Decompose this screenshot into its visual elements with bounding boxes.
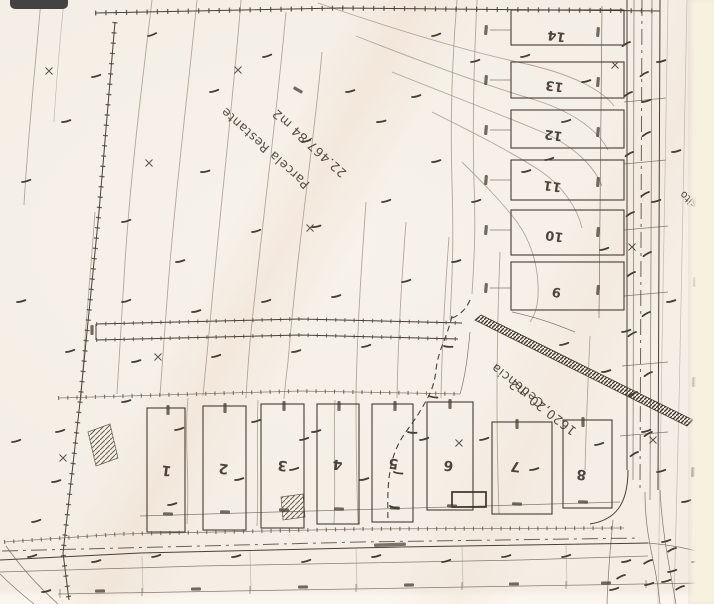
lot-outline xyxy=(511,110,624,148)
hatched-building xyxy=(88,424,305,520)
lot-number: 9 xyxy=(551,283,562,299)
lot-number: 12 xyxy=(544,126,564,143)
lot-number: 10 xyxy=(545,227,565,244)
lot-number: 2 xyxy=(218,459,230,476)
building-outline xyxy=(452,492,486,507)
lot-number: 8 xyxy=(576,465,588,482)
stream-dashed-line xyxy=(388,300,470,522)
lot-outline xyxy=(511,160,624,200)
property-boundary xyxy=(63,8,660,600)
lot-number: 1 xyxy=(161,461,173,478)
lot-number: 13 xyxy=(545,77,565,94)
paper-edge-strip xyxy=(688,0,714,604)
cedencia-area: 1620,20 m2 xyxy=(505,376,579,438)
lot-number: 11 xyxy=(543,177,563,194)
dark-overlay-pill xyxy=(10,0,68,9)
bottom-lots: 1 2 3 4 5 6 7 8 xyxy=(147,402,612,532)
lot-number: 7 xyxy=(510,457,522,474)
parcela-restante-label: Parcela Restante 22.467,84 m2 xyxy=(218,86,350,192)
spot-height-ticks xyxy=(12,30,708,599)
site-plan-drawing: 14 13 12 11 10 9 1 2 3 4 5 6 7 8 xyxy=(0,0,714,604)
lot-outline xyxy=(492,422,552,514)
lot-number: 3 xyxy=(277,456,289,473)
mid-boundary-lines xyxy=(58,319,470,398)
lot-number: 6 xyxy=(443,456,455,473)
cedencia-label: Cedencia 1620,20 m2 xyxy=(488,360,579,438)
lot-number: 4 xyxy=(331,455,343,472)
lot-outline xyxy=(427,402,473,510)
lot-outline xyxy=(511,10,624,45)
lot-number: 14 xyxy=(547,27,567,44)
scanned-site-plan: 14 13 12 11 10 9 1 2 3 4 5 6 7 8 xyxy=(0,0,714,604)
road-name-smudge xyxy=(374,542,406,547)
right-lots: 14 13 12 11 10 9 xyxy=(490,10,624,332)
parcela-restante-name: Parcela Restante xyxy=(218,105,313,193)
lot-outline xyxy=(511,62,624,98)
lot-number: 5 xyxy=(388,454,400,471)
bottom-road xyxy=(0,528,712,604)
lot-outline xyxy=(511,262,624,310)
